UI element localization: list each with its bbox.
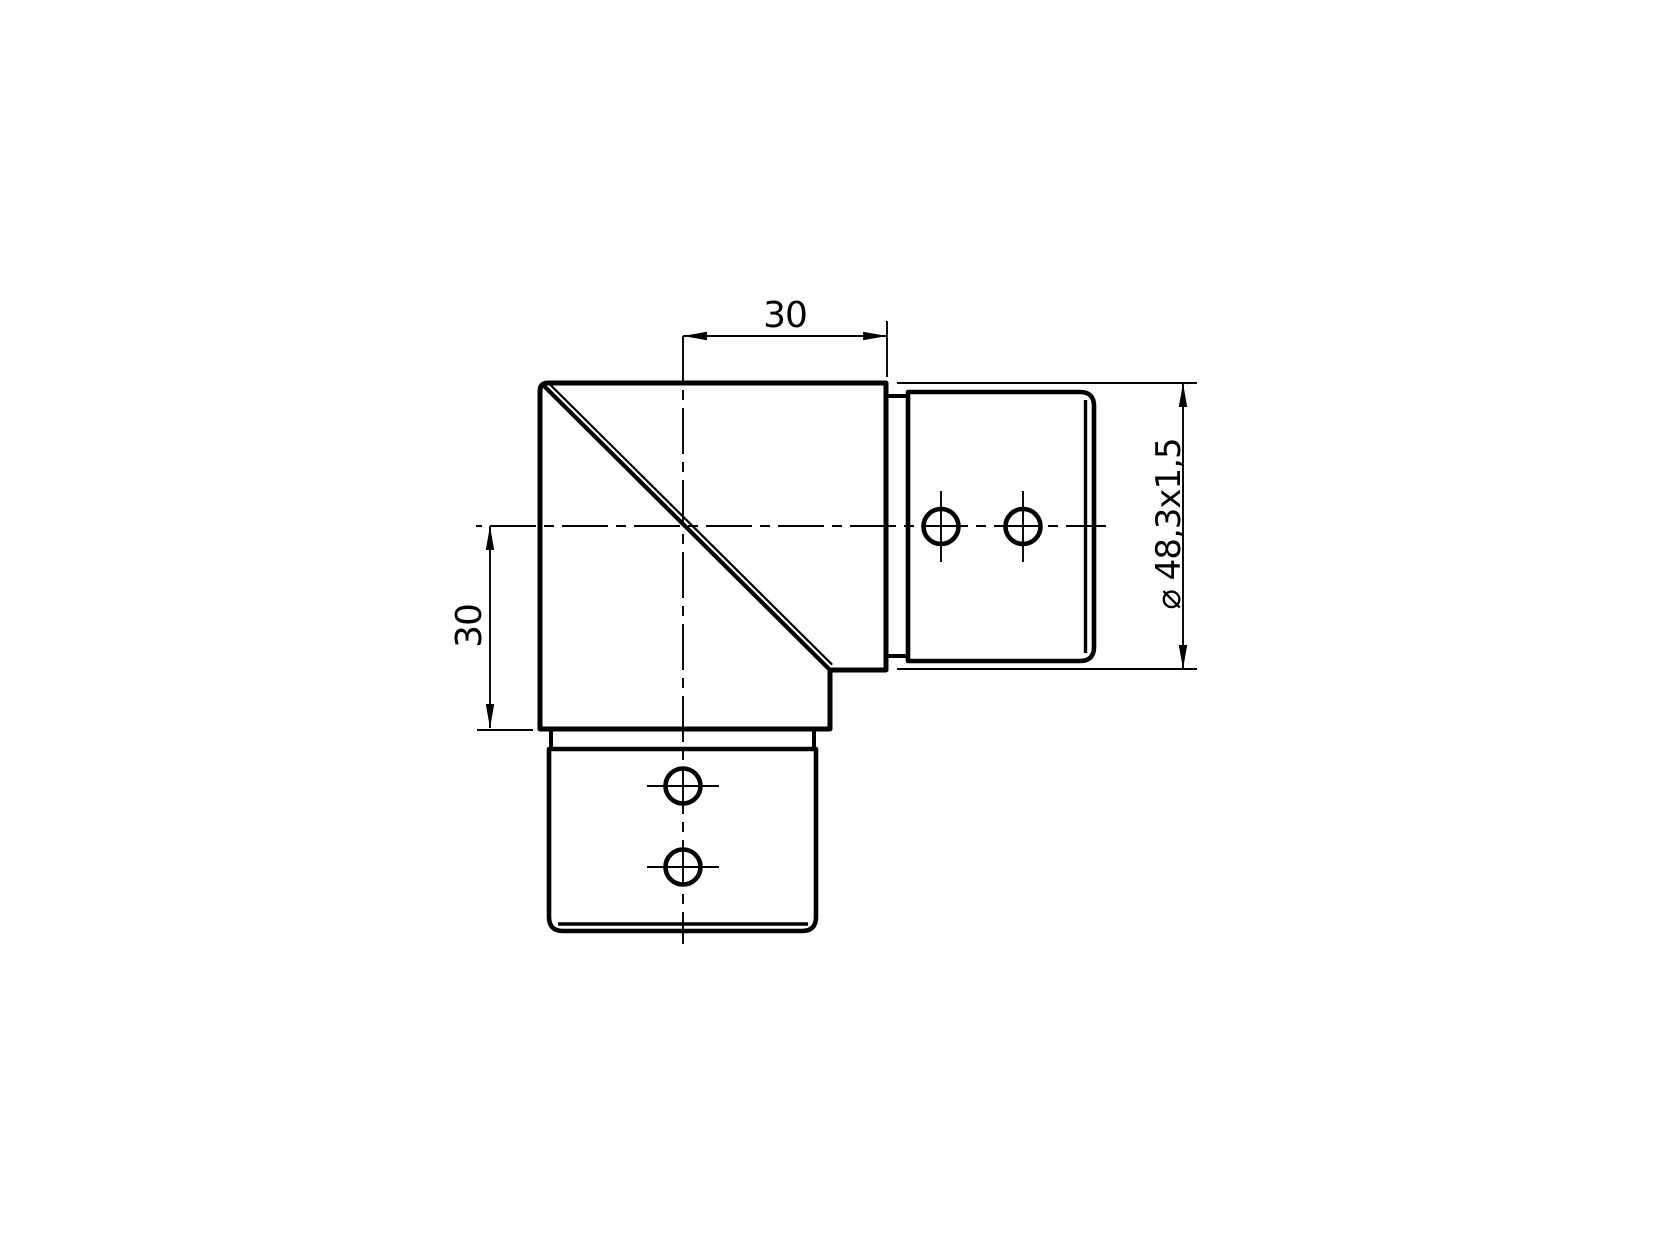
dim-diameter-arrow-top bbox=[1179, 383, 1187, 407]
dim-left-arrow-top bbox=[486, 526, 494, 550]
dim-top-arrow-left bbox=[683, 332, 707, 340]
dim-left-label: 30 bbox=[449, 604, 490, 648]
drawing-canvas: 30 30 ⌀ 48,3x1,5 bbox=[0, 0, 1680, 1260]
dim-left-arrow-bottom bbox=[486, 704, 494, 728]
dim-diameter-label: ⌀ 48,3x1,5 bbox=[1149, 438, 1189, 609]
dim-top-label: 30 bbox=[763, 295, 807, 336]
dim-diameter-arrow-bottom bbox=[1179, 645, 1187, 669]
dim-top-arrow-right bbox=[863, 332, 887, 340]
technical-drawing-svg: 30 30 ⌀ 48,3x1,5 bbox=[0, 0, 1680, 1260]
